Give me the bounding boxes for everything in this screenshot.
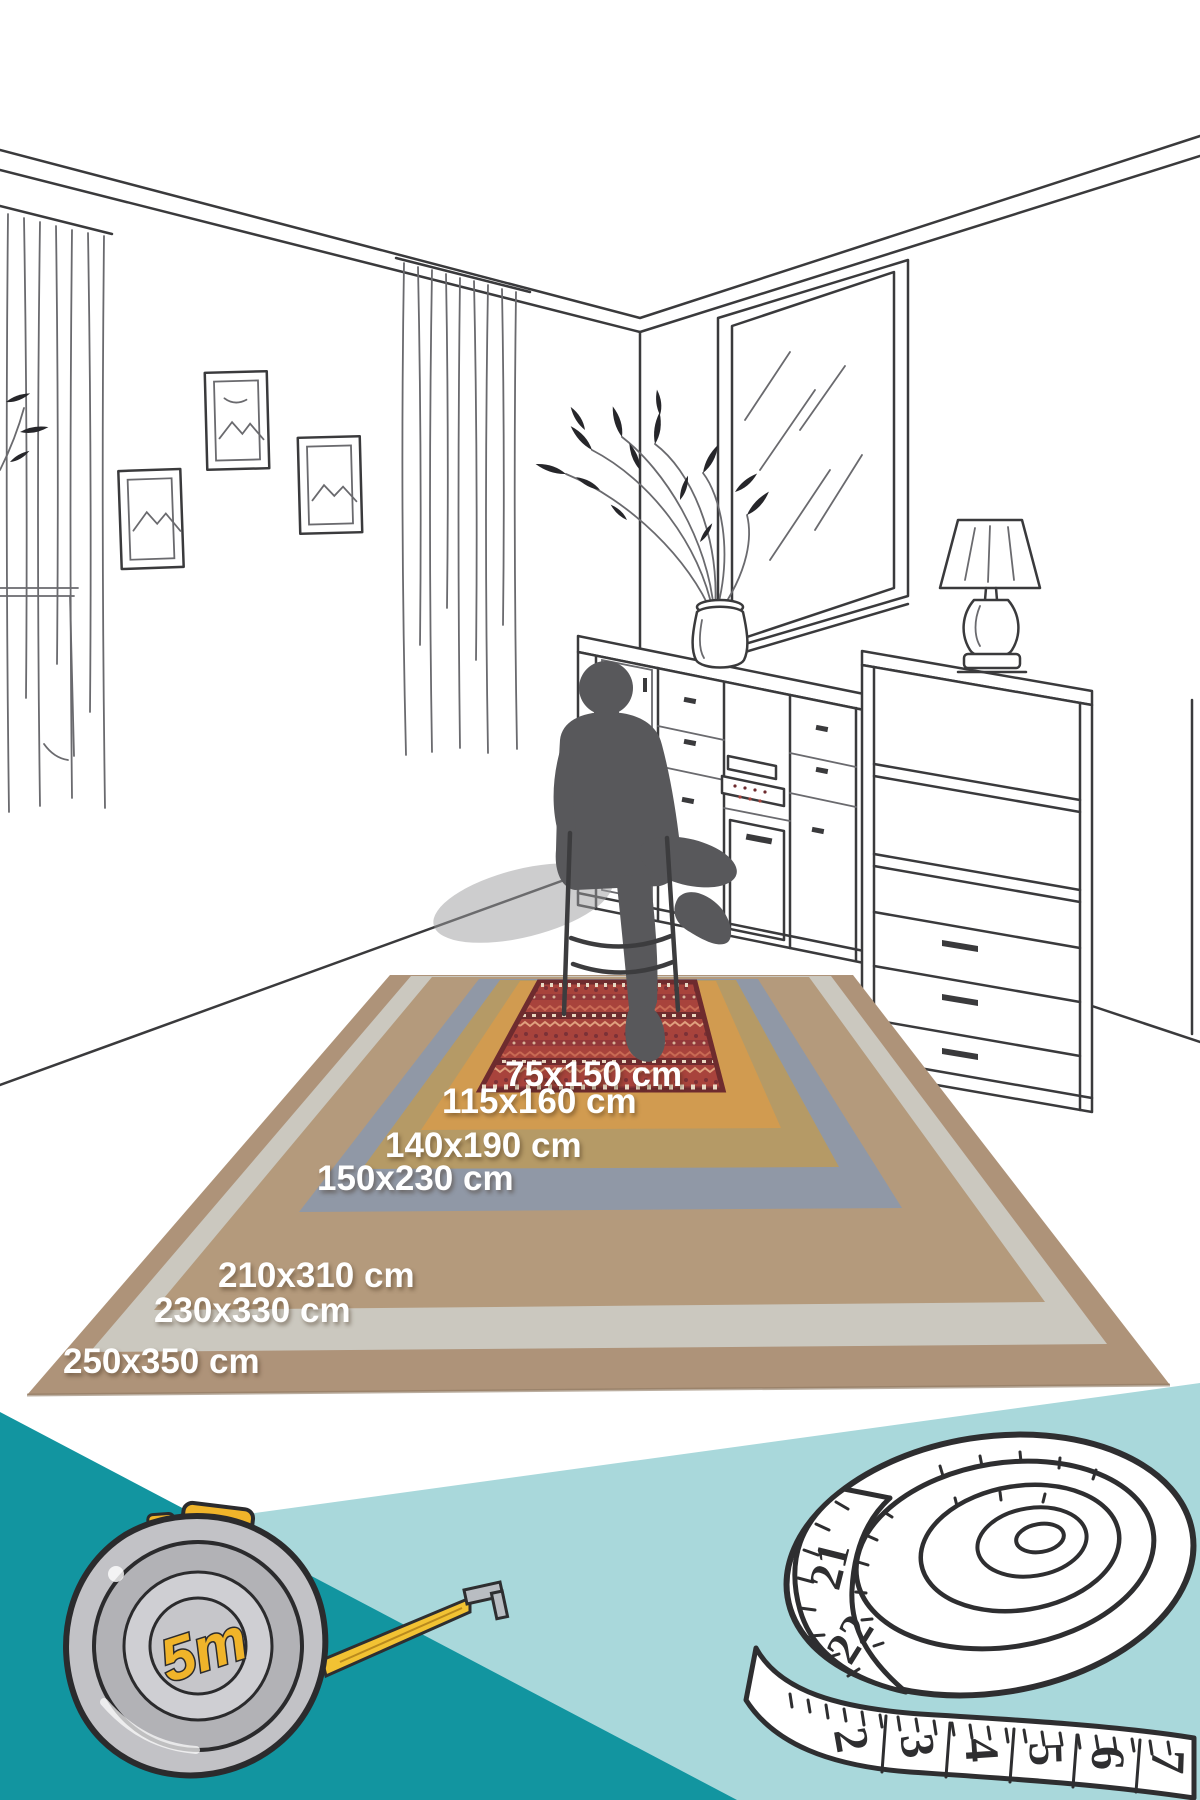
table-lamp: [940, 520, 1040, 672]
crown-molding: [0, 136, 1200, 332]
rug-size-label: 115x160 cm: [442, 1082, 637, 1121]
strip-number: 6: [1081, 1746, 1134, 1770]
left-curtain: [0, 206, 112, 812]
strip-number: 4: [954, 1736, 1009, 1764]
strip-number: 7: [1141, 1749, 1195, 1775]
rug-size-label: 150x230 cm: [317, 1159, 514, 1198]
picture-frame: [118, 469, 183, 569]
rug-size-label: 250x350 cm: [63, 1342, 260, 1381]
rug-size-label: 230x330 cm: [154, 1291, 351, 1330]
strip-number: 5: [1019, 1741, 1073, 1767]
picture-frame: [298, 436, 362, 534]
rug-size-label: 210x310 cm: [218, 1256, 415, 1295]
vase: [693, 600, 748, 668]
picture-frame: [205, 371, 270, 470]
room-sketch: [0, 136, 1200, 1112]
center-curtain: [396, 258, 530, 755]
window: [718, 260, 908, 660]
picture-frames: [118, 371, 362, 569]
rug-size-infographic: 75x150 cm 115x160 cm 140x190 cm 150x230 …: [0, 0, 1200, 1800]
